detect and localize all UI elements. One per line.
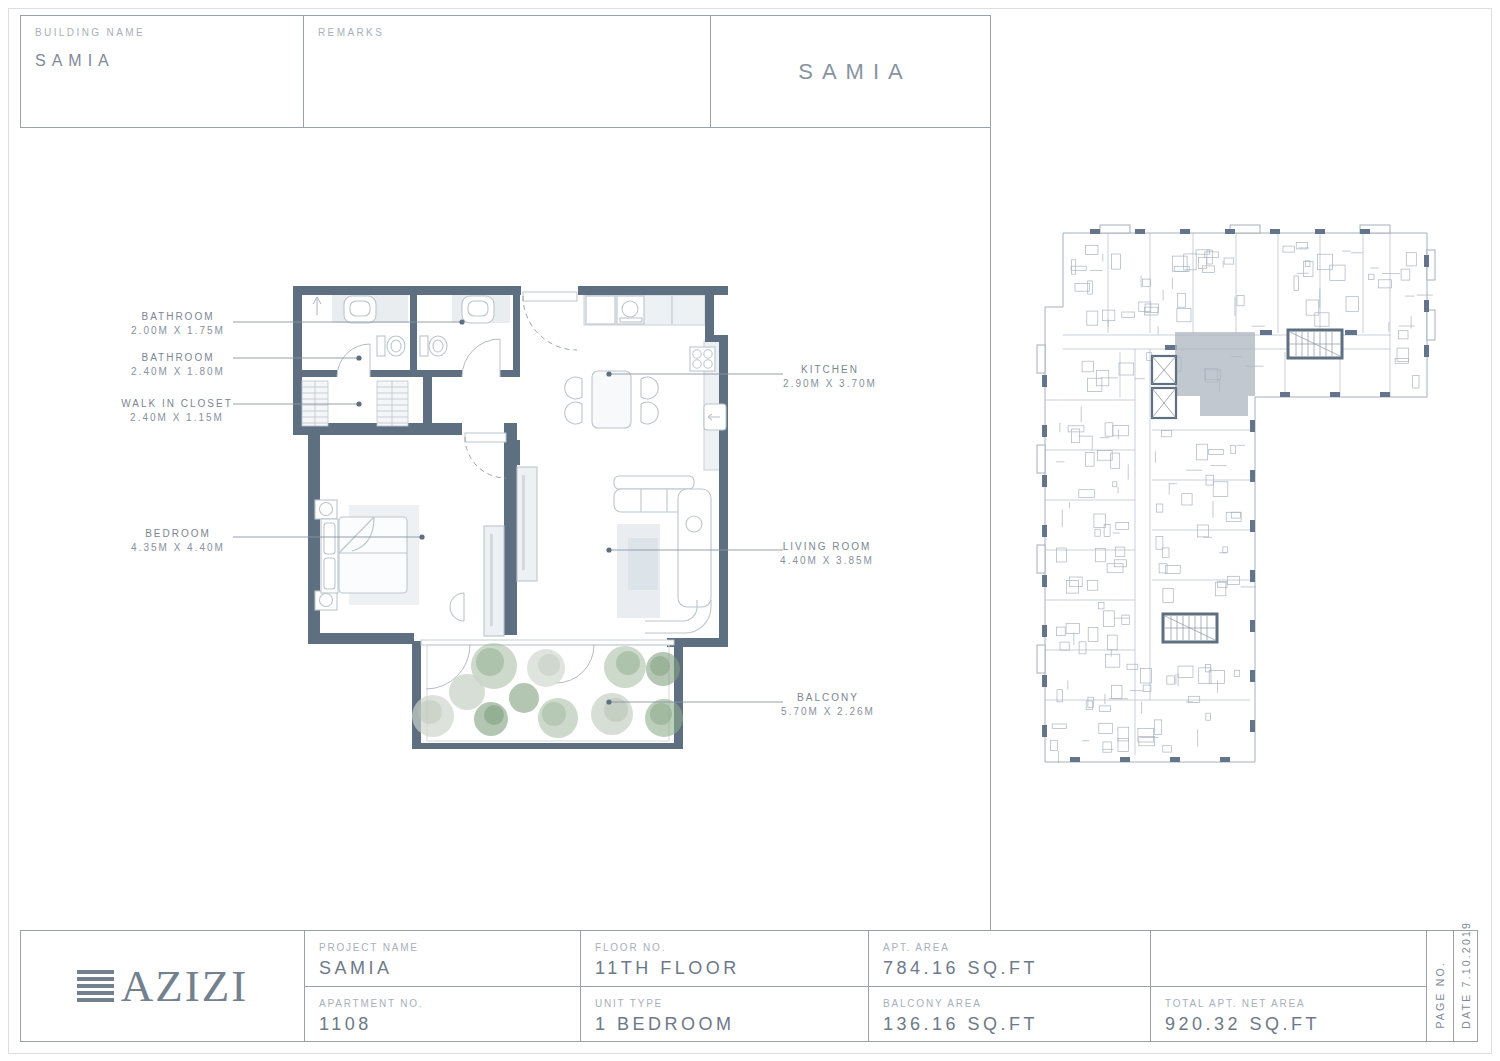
- walls: [293, 286, 728, 749]
- azizi-logo-icon: [77, 968, 114, 1004]
- sheet-title-box: SAMIA: [710, 15, 991, 128]
- dining-set: [565, 371, 659, 428]
- key-plan-highlighted-unit: [1175, 332, 1255, 416]
- building-name-value: SAMIA: [35, 52, 115, 70]
- remarks-box: REMARKS: [303, 15, 711, 128]
- callout-bathroom-2: BATHROOM 2.40M X 1.80M: [98, 351, 258, 378]
- building-name-box: BUILDING NAME SAMIA: [20, 15, 304, 128]
- key-plan-stair-cores: [1163, 330, 1342, 642]
- main-vertical-divider: [990, 15, 991, 930]
- azizi-logo-text: AZIZI: [121, 964, 248, 1009]
- callout-walk-in-closet: WALK IN CLOSET 2.40M X 1.15M: [97, 397, 257, 424]
- living-room-furniture: [450, 467, 711, 636]
- page-no-label: PAGE NO.: [1434, 961, 1446, 1029]
- date-column: DATE 7.10.2019: [1453, 931, 1479, 1041]
- callout-bedroom: BEDROOM 4.35M X 4.40M: [98, 527, 258, 554]
- field-balcony-area: BALCONY AREA 136.16 SQ.FT: [868, 987, 1150, 1041]
- sheet-title: SAMIA: [711, 16, 990, 127]
- key-plan-elevators: [1152, 356, 1176, 418]
- balcony-plants: [412, 643, 683, 738]
- callout-dots: [356, 319, 611, 704]
- shower-arrow-icon: [313, 297, 321, 315]
- callout-balcony: BALCONY 5.70M X 2.26M: [748, 691, 908, 718]
- key-plan-drawing: [1037, 225, 1435, 763]
- floor-plan-sheet: BUILDING NAME SAMIA REMARKS SAMIA BATHRO…: [0, 0, 1500, 1061]
- field-apartment-no: APARTMENT NO. 1108: [304, 987, 580, 1041]
- unit-plan-drawing: [233, 286, 783, 749]
- title-block: AZIZI PROJECT NAME SAMIA FLOOR NO. 11TH …: [20, 930, 1478, 1042]
- field-apt-area: APT. AREA 784.16 SQ.FT: [868, 931, 1150, 986]
- field-total-net-area: TOTAL APT. NET AREA 920.32 SQ.FT: [1150, 987, 1426, 1041]
- logo-cell: AZIZI: [21, 931, 304, 1041]
- closet-shelving: [302, 381, 408, 426]
- field-floor-no: FLOOR NO. 11TH FLOOR: [580, 931, 868, 986]
- callout-leader-lines: [233, 322, 783, 702]
- field-unit-type: UNIT TYPE 1 BEDROOM: [580, 987, 868, 1041]
- remarks-label: REMARKS: [318, 27, 384, 38]
- page-no-column: PAGE NO.: [1426, 931, 1453, 1041]
- kitchen-appliances: [586, 296, 726, 430]
- field-project-name: PROJECT NAME SAMIA: [304, 931, 580, 986]
- balcony: [412, 640, 683, 741]
- bathroom-fixtures: [344, 296, 494, 356]
- building-name-label: BUILDING NAME: [35, 27, 145, 38]
- callout-bathroom-1: BATHROOM 2.00M X 1.75M: [98, 310, 258, 337]
- date-label: DATE 7.10.2019: [1460, 921, 1472, 1029]
- callout-living-room: LIVING ROOM 4.40M X 3.85M: [747, 540, 907, 567]
- callout-kitchen: KITCHEN 2.90M X 3.70M: [750, 363, 910, 390]
- doors: [337, 292, 577, 478]
- bedroom-furniture: [315, 500, 407, 610]
